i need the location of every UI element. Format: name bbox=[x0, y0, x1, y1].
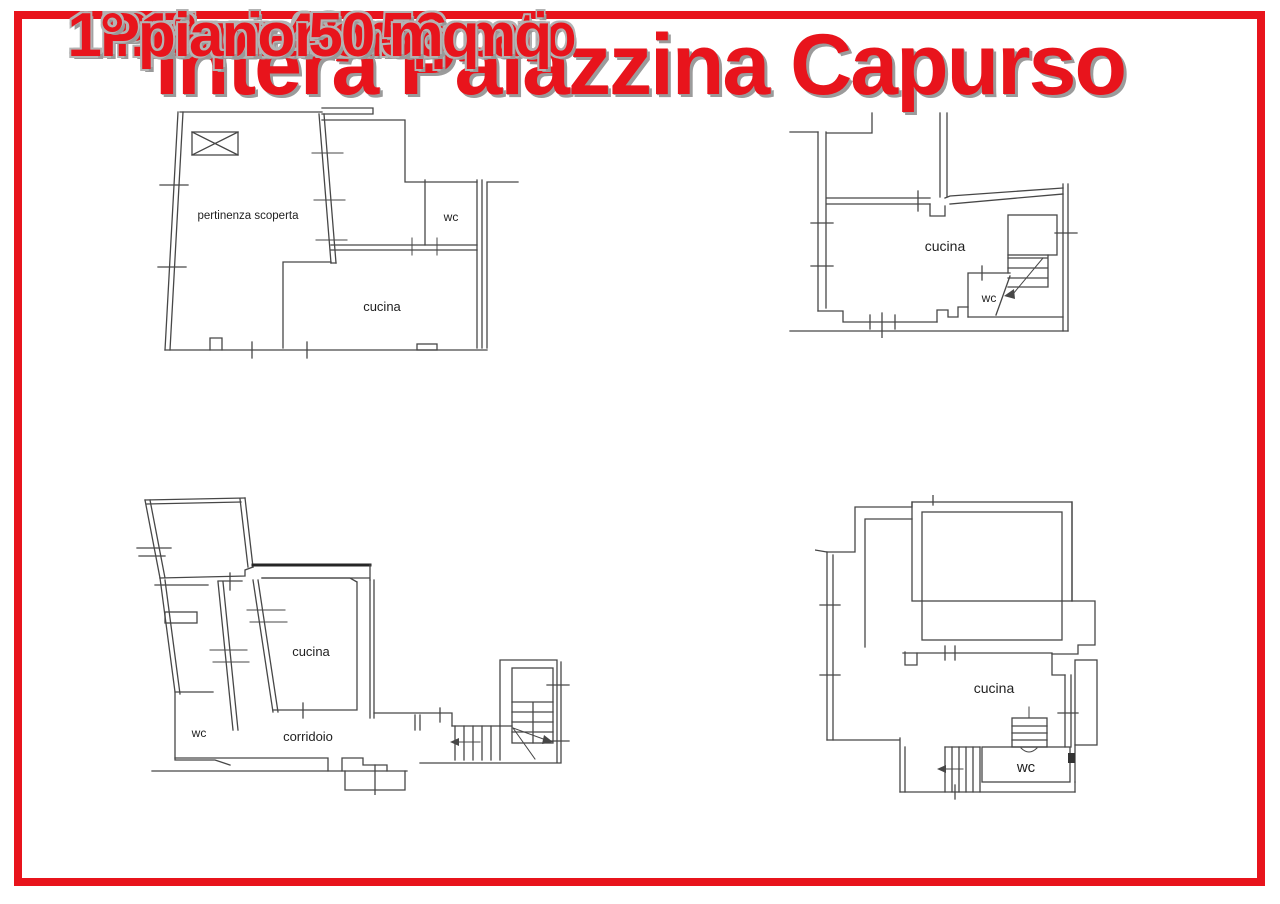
small-staircase bbox=[1012, 707, 1047, 752]
room-label-wc: wc bbox=[1016, 759, 1036, 776]
big-room bbox=[903, 502, 1095, 665]
cucina-room bbox=[253, 565, 374, 718]
room-label-wc: wc bbox=[981, 291, 997, 305]
patio-partition-wall bbox=[312, 114, 347, 263]
room-label-cucina: cucina bbox=[974, 680, 1015, 696]
staircase bbox=[420, 660, 561, 763]
skylight-symbol bbox=[192, 132, 238, 155]
corridor bbox=[152, 713, 452, 790]
staircase bbox=[1004, 215, 1057, 299]
interior-partition bbox=[865, 519, 912, 647]
floor-plan-first-right: cucina wc bbox=[815, 495, 1105, 800]
floor-plan-first-left: cucina wc corridoio bbox=[135, 490, 570, 795]
floor-plan-ground-right: cucina wc bbox=[785, 108, 1085, 338]
flyer-canvas: Intera Palazzina Capurso bbox=[0, 0, 1280, 904]
caption-first-right: 1° piano 50 mq bbox=[0, 0, 545, 71]
floor-plan-ground-left: pertinenza scoperta wc cucina bbox=[150, 105, 530, 361]
room-label-wc: wc bbox=[443, 210, 459, 224]
left-wing-walls bbox=[155, 578, 287, 765]
lower-staircase bbox=[937, 747, 980, 792]
outer-walls bbox=[790, 113, 1068, 331]
dimension-ticks bbox=[820, 495, 1078, 799]
room-label-cucina: cucina bbox=[925, 238, 966, 254]
inner-walls bbox=[283, 180, 477, 348]
upper-room bbox=[145, 498, 253, 578]
room-label-wc: wc bbox=[191, 726, 207, 740]
room-label-cucina: cucina bbox=[363, 299, 401, 314]
room-label-pertinenza: pertinenza scoperta bbox=[197, 210, 299, 222]
room-label-cucina: cucina bbox=[292, 644, 330, 659]
room-label-corridoio: corridoio bbox=[283, 729, 333, 744]
